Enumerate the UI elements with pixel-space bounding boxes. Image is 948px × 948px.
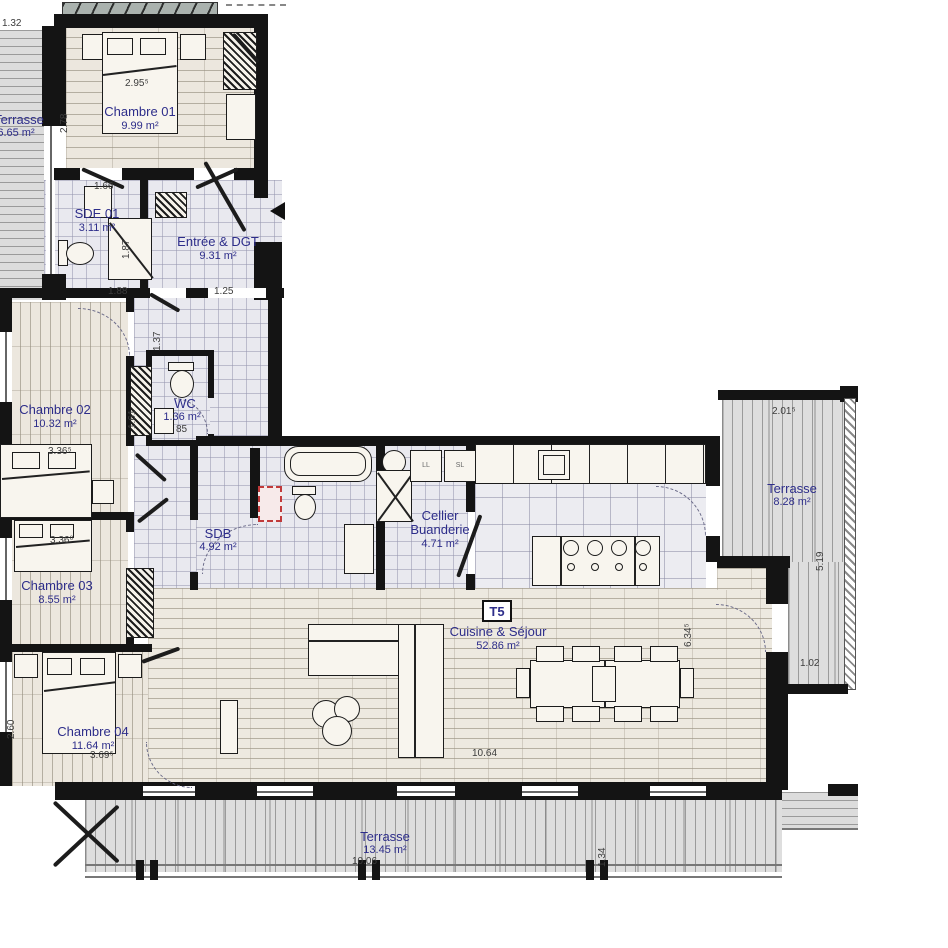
room-area-entree: 9.31 m² bbox=[163, 250, 273, 262]
dimension: 6.34⁵ bbox=[683, 623, 694, 647]
dimension: 1.25 bbox=[214, 286, 233, 297]
dimension: 1.66 bbox=[94, 181, 113, 192]
dimension: 10.06 bbox=[352, 856, 377, 867]
room-area-terrasse-nw: 6.65 m² bbox=[0, 127, 46, 139]
wall-segment bbox=[0, 600, 12, 662]
railing-post bbox=[136, 860, 144, 880]
terrace-railing bbox=[85, 876, 782, 878]
wall-segment bbox=[828, 784, 858, 796]
dimension: 10.64 bbox=[472, 748, 497, 759]
floor-terrasse-e bbox=[722, 398, 844, 562]
window bbox=[397, 786, 455, 796]
dimension: 2.95⁵ bbox=[125, 78, 149, 89]
dimension: 1.87 bbox=[121, 240, 132, 259]
dimension: 3.58 bbox=[0, 404, 2, 423]
wall-segment bbox=[0, 296, 12, 332]
dimension: 3.69⁵ bbox=[90, 750, 114, 761]
nightstand-icon bbox=[118, 654, 142, 678]
wall-segment bbox=[706, 436, 720, 486]
terrace-railing bbox=[85, 864, 782, 866]
toilet-icon bbox=[66, 242, 94, 265]
pillow-icon bbox=[140, 38, 166, 55]
railing-post bbox=[586, 860, 594, 880]
wall-segment bbox=[0, 732, 12, 786]
pillow-icon bbox=[12, 452, 40, 469]
closet-shelf bbox=[226, 94, 256, 140]
cooktop-burner-icon bbox=[563, 540, 579, 556]
wardrobe-icon bbox=[155, 192, 187, 218]
wall-segment bbox=[42, 26, 66, 126]
pillow-icon bbox=[107, 38, 133, 55]
room-label-entree: Entrée & DGT bbox=[163, 234, 273, 249]
window bbox=[650, 786, 706, 796]
room-label-cellier-2: Buanderie bbox=[395, 522, 485, 537]
wall-segment bbox=[718, 390, 848, 400]
dimension: 1.61 bbox=[127, 410, 138, 429]
kitchen-sink-basin bbox=[543, 455, 565, 475]
wall-segment bbox=[126, 298, 134, 312]
wall-segment bbox=[766, 652, 788, 790]
chair-icon bbox=[572, 706, 600, 722]
chair-icon bbox=[650, 706, 678, 722]
room-area-terrasse-e: 8.28 m² bbox=[752, 496, 832, 508]
type-badge: T5 bbox=[482, 600, 512, 622]
dimension: 5.19 bbox=[815, 552, 826, 571]
floor-terrasse-s bbox=[85, 794, 782, 872]
room-label-sdb: SDB bbox=[178, 526, 258, 541]
room-area-cellier: 4.71 m² bbox=[395, 538, 485, 550]
window bbox=[522, 786, 578, 796]
railing-post bbox=[150, 860, 158, 880]
wardrobe-icon bbox=[126, 568, 154, 638]
chair-icon bbox=[592, 666, 616, 702]
room-label-chambre-03: Chambre 03 bbox=[7, 578, 107, 593]
property-dash-line bbox=[226, 4, 286, 6]
nightstand-icon bbox=[92, 480, 114, 504]
wall-segment bbox=[466, 574, 475, 590]
wall-segment bbox=[0, 644, 152, 652]
room-label-cuisine: Cuisine & Séjour bbox=[423, 624, 573, 639]
island-divider bbox=[560, 536, 562, 586]
toilet-icon bbox=[294, 494, 316, 520]
room-area-sdb: 4.92 m² bbox=[178, 541, 258, 553]
cooktop-burner-icon bbox=[587, 540, 603, 556]
wall-segment bbox=[126, 512, 134, 532]
pouf-icon bbox=[322, 716, 352, 746]
chair-icon bbox=[516, 668, 530, 698]
wall-segment bbox=[208, 350, 214, 398]
chair-icon bbox=[536, 706, 564, 722]
pillow-icon bbox=[19, 524, 43, 538]
dimension: 1.32 bbox=[2, 18, 21, 29]
wall-segment bbox=[190, 572, 198, 590]
floor-terrasse-nw bbox=[0, 30, 44, 300]
wall-segment bbox=[54, 14, 268, 28]
dimension: 1.34 bbox=[597, 848, 608, 867]
room-label-wc: WC bbox=[160, 396, 210, 411]
terrace-railing bbox=[782, 828, 858, 830]
sofa-chaise-line bbox=[414, 624, 416, 758]
room-label-cellier: Cellier bbox=[395, 508, 485, 523]
room-label-sde-01: SDE 01 bbox=[57, 206, 137, 221]
dryer-label: SL bbox=[444, 462, 476, 469]
dimension: 1.37 bbox=[152, 332, 163, 351]
dimension: 1.02 bbox=[800, 658, 819, 669]
room-area-sde-01: 3.11 m² bbox=[57, 222, 137, 234]
floor-terrasse-e2 bbox=[788, 562, 844, 688]
room-area-terrasse-s: 13.45 m² bbox=[350, 844, 420, 856]
wall-segment bbox=[788, 684, 848, 694]
room-area-chambre-03: 8.55 m² bbox=[7, 594, 107, 606]
floor-sejour-ext bbox=[717, 568, 768, 590]
window bbox=[0, 332, 12, 402]
terrace-rail-hatch bbox=[844, 398, 856, 690]
chair-icon bbox=[680, 668, 694, 698]
room-area-cuisine: 52.86 m² bbox=[423, 640, 573, 652]
chair-icon bbox=[614, 706, 642, 722]
vanity-cabinet bbox=[344, 524, 374, 574]
cooktop-burner-icon bbox=[611, 540, 627, 556]
duct-shaft bbox=[258, 486, 282, 522]
room-label-chambre-04: Chambre 04 bbox=[43, 724, 143, 739]
entrance-arrow-icon bbox=[270, 202, 285, 220]
dimension: 2.78 bbox=[59, 114, 70, 133]
room-label-chambre-02: Chambre 02 bbox=[0, 402, 110, 417]
room-area-chambre-02: 10.32 m² bbox=[0, 418, 110, 430]
chair-icon bbox=[572, 646, 600, 662]
window bbox=[257, 786, 313, 796]
floor-plan: LL SL Terrasse 6.65 bbox=[0, 0, 948, 948]
wall-segment bbox=[190, 443, 198, 520]
wall-segment bbox=[268, 250, 282, 446]
cooktop-burner-icon bbox=[635, 540, 651, 556]
dimension: 2.60 bbox=[6, 720, 17, 739]
pillow-icon bbox=[80, 658, 105, 675]
cooktop-knob-icon bbox=[567, 563, 575, 571]
chair-icon bbox=[614, 646, 642, 662]
pillow-icon bbox=[47, 658, 72, 675]
room-label-terrasse-nw: Terrasse bbox=[0, 112, 54, 127]
dimension: 1.88 bbox=[108, 286, 127, 297]
room-area-wc: 1.36 m² bbox=[152, 411, 212, 423]
cooktop-knob-icon bbox=[615, 563, 623, 571]
washer-label: LL bbox=[410, 462, 442, 469]
room-label-terrasse-s: Terrasse bbox=[350, 829, 420, 844]
room-label-chambre-01: Chambre 01 bbox=[90, 104, 190, 119]
window bbox=[46, 126, 55, 274]
chair-icon bbox=[650, 646, 678, 662]
dimension: 85 bbox=[176, 424, 187, 435]
wall-segment bbox=[766, 556, 788, 604]
kitchen-counter bbox=[475, 444, 706, 484]
bathtub-inner bbox=[290, 452, 366, 476]
floor-terrasse-se-stub bbox=[782, 792, 858, 828]
room-label-terrasse-e: Terrasse bbox=[752, 481, 832, 496]
cooktop-knob-icon bbox=[639, 563, 647, 571]
room-area-chambre-01: 9.99 m² bbox=[90, 120, 190, 132]
dimension: 3.36⁰ bbox=[50, 535, 73, 546]
cooktop-knob-icon bbox=[591, 563, 599, 571]
console-icon bbox=[220, 700, 238, 754]
nightstand-icon bbox=[14, 654, 38, 678]
dimension: 2.01⁵ bbox=[772, 406, 796, 417]
toilet-icon bbox=[170, 370, 194, 398]
nightstand-icon bbox=[180, 34, 206, 60]
dimension: 3.36⁵ bbox=[48, 446, 72, 457]
